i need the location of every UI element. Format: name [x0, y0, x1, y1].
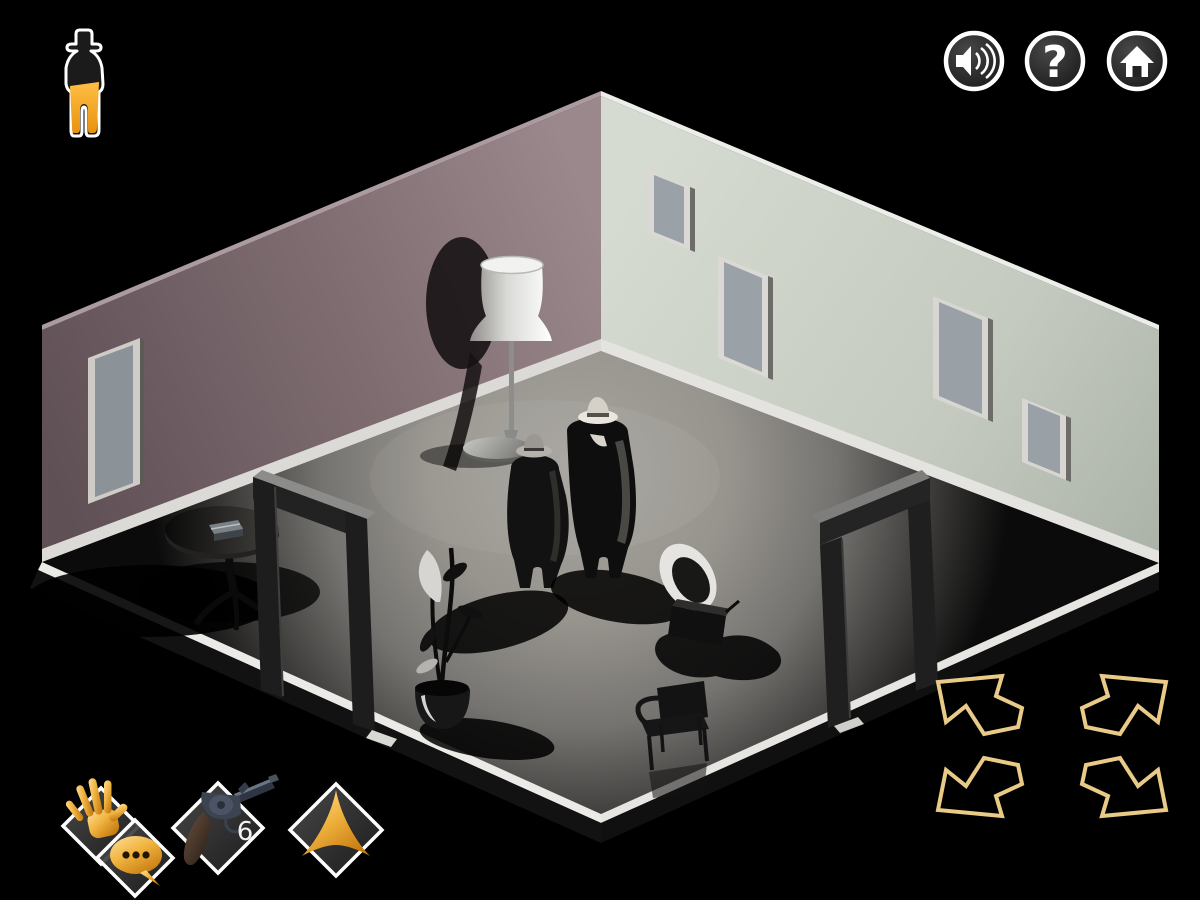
game-viewport: ?	[0, 0, 1200, 900]
game-stage: ?	[0, 0, 1200, 900]
shoot-button[interactable]: 6	[173, 774, 279, 873]
revolver-cylinder-pin	[217, 801, 225, 809]
plant-pot-rim	[415, 680, 469, 696]
picture-frame-left-wall	[88, 338, 144, 504]
table-leg-front	[234, 592, 237, 630]
home-button[interactable]	[1109, 33, 1165, 89]
detective-gray-hat-band	[524, 448, 544, 451]
move-button[interactable]	[290, 784, 382, 876]
chair-leg-4	[699, 717, 701, 745]
help-button[interactable]: ?	[1027, 33, 1083, 89]
lamp-shade-top	[481, 257, 543, 274]
ammo-count: 6	[237, 817, 254, 847]
sound-button[interactable]	[946, 33, 1002, 89]
character-badge	[66, 30, 103, 136]
question-mark-icon: ?	[1042, 37, 1068, 88]
nav-arrow-down-right[interactable]	[1082, 758, 1166, 816]
chair-leg-3	[661, 724, 663, 752]
nav-arrow-down-left[interactable]	[938, 758, 1022, 816]
detective-white-hat-band	[587, 413, 609, 417]
nav-arrow-up-left[interactable]	[938, 676, 1022, 734]
nav-arrow-up-right[interactable]	[1082, 676, 1166, 734]
